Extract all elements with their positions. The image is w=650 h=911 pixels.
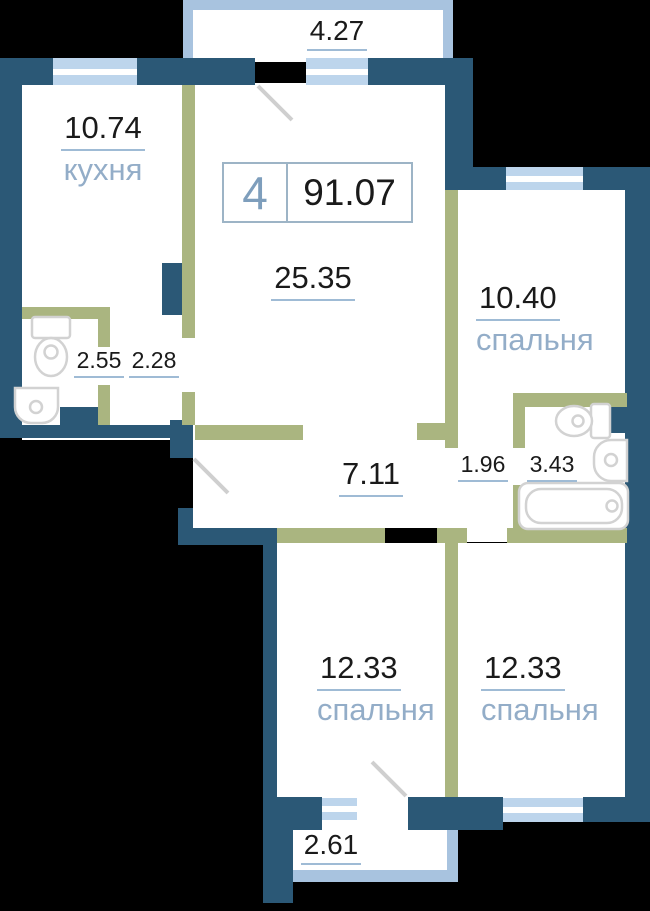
lobby-area: 1.96 [458, 452, 509, 482]
toilet-icon [32, 317, 70, 376]
bedroom-bottom-right-name: спальня [481, 694, 621, 727]
bathroom-area: 3.43 [527, 452, 578, 482]
unit-total-area: 91.07 [288, 164, 411, 221]
kitchen-area: 10.74 [61, 112, 145, 151]
bedroom-top-name: спальня [476, 324, 616, 357]
living-area: 25.35 [271, 262, 355, 301]
bedroom-bottom-left-label: 12.33 спальня [317, 652, 447, 726]
bedroom-bottom-left-area: 12.33 [317, 652, 401, 691]
floor-plan: 4.27 10.74 кухня 4 91.07 25.35 10.40 спа… [0, 0, 650, 911]
balcony-top-label: 4.27 [300, 16, 374, 51]
bedroom-bottom-left-name: спальня [317, 694, 447, 727]
sink-icon [15, 388, 58, 423]
bathroom-label: 3.43 [524, 452, 580, 482]
kitchen-label: 10.74 кухня [55, 112, 151, 186]
bedroom-bottom-right-label: 12.33 спальня [481, 652, 621, 726]
nook-area: 2.28 [129, 348, 180, 378]
entry-door-swing [194, 459, 228, 493]
wc-label: 2.55 [70, 348, 128, 378]
balcony-door-swing [258, 86, 292, 120]
hall-area: 7.11 [339, 458, 403, 497]
unit-rooms-count: 4 [224, 164, 286, 221]
balcony-top-area: 4.27 [307, 16, 368, 51]
bathtub-icon [519, 483, 628, 529]
balcony-bottom-area: 2.61 [301, 830, 362, 865]
bedroom-top-area: 10.40 [476, 282, 560, 321]
sink-icon-2 [594, 440, 627, 481]
balcony-bottom-label: 2.61 [295, 830, 367, 865]
toilet-icon-2 [556, 404, 610, 438]
living-label: 25.35 [265, 262, 361, 301]
hall-label: 7.11 [330, 458, 412, 497]
bedroom-bottom-right-area: 12.33 [481, 652, 565, 691]
bedroom-top-label: 10.40 спальня [476, 282, 616, 356]
lobby-label: 1.96 [455, 452, 511, 482]
nook-label: 2.28 [125, 348, 183, 378]
bottom-balcony-door-swing [372, 762, 406, 796]
unit-badge: 4 91.07 [222, 162, 413, 223]
kitchen-name: кухня [55, 154, 151, 187]
wc-area: 2.55 [74, 348, 125, 378]
